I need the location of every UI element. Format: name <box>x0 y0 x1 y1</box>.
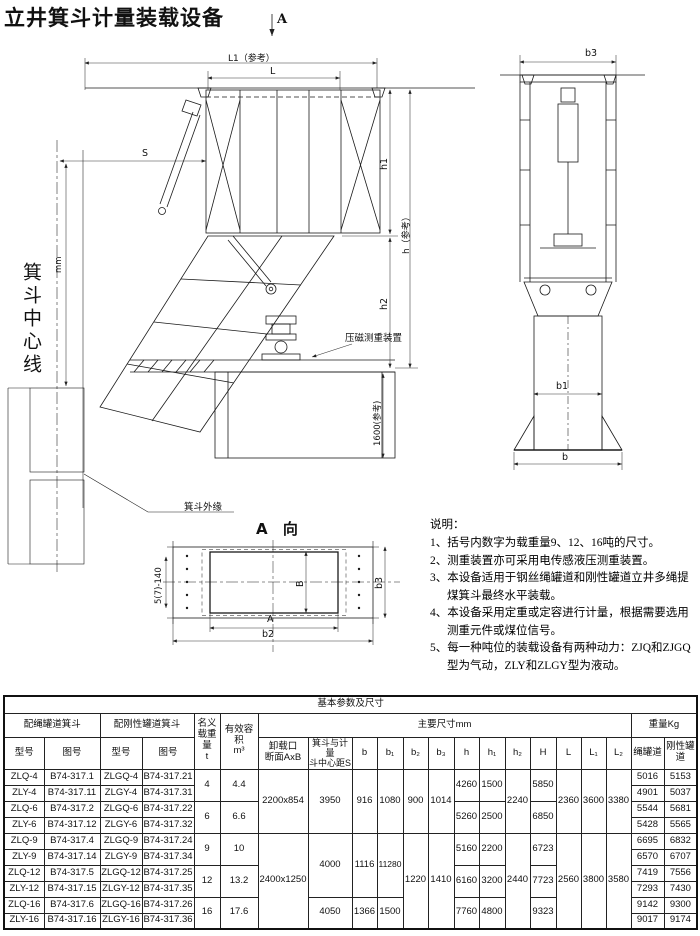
table-cell: B74-317.31 <box>142 785 194 801</box>
dim-label-mm: mm <box>54 256 64 273</box>
header-dim: b₃ <box>428 737 454 769</box>
table-cell: ZLY-16 <box>4 913 44 929</box>
table-cell: 6570 <box>631 849 664 865</box>
table-cell: B74-317.5 <box>44 865 100 881</box>
table-cell: 3950 <box>308 769 352 833</box>
dim-label-holes: 5(7)-140 <box>154 567 164 604</box>
technical-drawing: A L1（参考） L S mm h1 h2 h（参考） 1600(参考) 压磁测… <box>0 0 700 694</box>
table-row: ZLQ-4 B74-317.1 ZLGQ-4 B74-317.21 4 4.4 … <box>4 769 697 785</box>
table-cell: B74-317.1 <box>44 769 100 785</box>
table-cell: 4901 <box>631 785 664 801</box>
table-cell: 3580 <box>606 833 631 929</box>
table-cell: ZLGQ-9 <box>100 833 142 849</box>
table-cell: 4800 <box>479 897 505 929</box>
header-dim: L <box>556 737 581 769</box>
table-cell: B74-317.36 <box>142 913 194 929</box>
table-cell: 3800 <box>581 833 606 929</box>
table-cell: 5037 <box>664 785 697 801</box>
dim-label-l1: L1（参考） <box>228 51 275 64</box>
table-cell: 4050 <box>308 897 352 929</box>
table-cell: 7723 <box>530 865 556 897</box>
dim-label-A: A <box>267 614 274 625</box>
table-cell: ZLQ-16 <box>4 897 44 913</box>
table-cell: ZLGQ-12 <box>100 865 142 881</box>
table-cell: 9 <box>194 833 220 865</box>
table-cell: 2560 <box>556 833 581 929</box>
table-cell: 5681 <box>664 801 697 817</box>
table-cell: 7430 <box>664 881 697 897</box>
table-row: ZLQ-9 B74-317.4 ZLGQ-9 B74-317.24 9 10 2… <box>4 833 697 849</box>
table-cell: 5850 <box>530 769 556 801</box>
table-cell: 6 <box>194 801 220 833</box>
note-item: 1、括号内数字为载重量9、12、16吨的尺寸。 <box>430 535 696 552</box>
table-cell: 2440 <box>505 833 530 929</box>
table-cell: ZLGQ-16 <box>100 897 142 913</box>
table-cell: 11280 <box>377 833 403 897</box>
header-drawing-no: 图号 <box>44 737 100 769</box>
view-a-title: A 向 <box>256 518 303 539</box>
table-cell: 6723 <box>530 833 556 865</box>
table-cell: ZLY-12 <box>4 881 44 897</box>
table-cell: 1220 <box>403 833 428 929</box>
table-cell: 17.6 <box>220 897 258 929</box>
header-load: 名义 载重量 t <box>194 713 220 769</box>
table-cell: ZLGY-6 <box>100 817 142 833</box>
table-cell: 4 <box>194 769 220 801</box>
table-cell: B74-317.2 <box>44 801 100 817</box>
header-dim: L₂ <box>606 737 631 769</box>
table-cell: ZLQ-4 <box>4 769 44 785</box>
header-dim: H <box>530 737 556 769</box>
dim-label-h2: h2 <box>379 298 390 310</box>
dim-label-b1: b1 <box>556 381 568 392</box>
table-cell: 1500 <box>479 769 505 801</box>
table-cell: 3200 <box>479 865 505 897</box>
header-model: 型号 <box>4 737 44 769</box>
table-cell: 2200 <box>479 833 505 865</box>
table-cell: 7293 <box>631 881 664 897</box>
table-cell: 7419 <box>631 865 664 881</box>
table-cell: B74-317.11 <box>44 785 100 801</box>
header-dim: h <box>454 737 479 769</box>
table-cell: 900 <box>403 769 428 833</box>
section-arrow-label: A <box>277 12 287 27</box>
dim-label-b2: b2 <box>262 629 274 640</box>
table-cell: 5428 <box>631 817 664 833</box>
table-cell: B74-317.12 <box>44 817 100 833</box>
header-rope-group: 配绳罐道箕斗 <box>4 713 100 737</box>
table-cell: 12 <box>194 865 220 897</box>
table-cell: B74-317.21 <box>142 769 194 785</box>
table-cell: 6850 <box>530 801 556 833</box>
table-cell: B74-317.14 <box>44 849 100 865</box>
header-center-s: 箕斗与计量 斗中心距S <box>308 737 352 769</box>
note-item: 5、每一种吨位的装载设备有两种动力：ZJQ和ZJGQ型为气动，ZLY和ZLGY型… <box>430 640 696 675</box>
table-cell: B74-317.34 <box>142 849 194 865</box>
header-model: 型号 <box>100 737 142 769</box>
header-main-dims: 主要尺寸mm <box>258 713 631 737</box>
table-cell: 1080 <box>377 769 403 833</box>
table-cell: ZLQ-6 <box>4 801 44 817</box>
weigher-device-label: 压磁测重装置 <box>345 330 402 344</box>
table-row: 基本参数及尺寸 <box>4 696 697 713</box>
notes-block: 说明： 1、括号内数字为载重量9、12、16吨的尺寸。 2、测重装置亦可采用电传… <box>430 517 696 675</box>
table-cell: 4000 <box>308 833 352 897</box>
table-cell: 1500 <box>377 897 403 929</box>
table-cell: B74-317.35 <box>142 881 194 897</box>
table-cell: 3380 <box>606 769 631 833</box>
table-cell: 5016 <box>631 769 664 785</box>
dim-label-B: B <box>295 580 306 587</box>
table-cell: ZLY-9 <box>4 849 44 865</box>
table-cell: 5544 <box>631 801 664 817</box>
table-cell: 6.6 <box>220 801 258 833</box>
table-cell: 3600 <box>581 769 606 833</box>
table-cell: 9142 <box>631 897 664 913</box>
table-cell: ZLQ-12 <box>4 865 44 881</box>
table-cell: 2500 <box>479 801 505 833</box>
table-cell: 9017 <box>631 913 664 929</box>
table-cell: 1116 <box>352 833 377 897</box>
table-cell: 2400x1250 <box>258 833 308 929</box>
header-dim: h₂ <box>505 737 530 769</box>
header-drawing-no: 图号 <box>142 737 194 769</box>
table-cell: 1014 <box>428 769 454 833</box>
table-row: 配绳罐道箕斗 配刚性罐道箕斗 名义 载重量 t 有效容积 m³ 主要尺寸mm 重… <box>4 713 697 737</box>
table-cell: B74-317.24 <box>142 833 194 849</box>
table-cell: 6832 <box>664 833 697 849</box>
table-cell: 2360 <box>556 769 581 833</box>
dim-label-h-ref: h（参考） <box>399 212 412 254</box>
table-cell: B74-317.6 <box>44 897 100 913</box>
header-dim: h₁ <box>479 737 505 769</box>
table-cell: 10 <box>220 833 258 865</box>
table-cell: B74-317.26 <box>142 897 194 913</box>
table-cell: 1410 <box>428 833 454 929</box>
table-cell: 4260 <box>454 769 479 801</box>
table-cell: 6160 <box>454 865 479 897</box>
note-item: 3、本设备适用于钢丝绳罐道和刚性罐道立井多绳提煤箕斗最终水平装载。 <box>430 570 696 605</box>
spec-table: 基本参数及尺寸 配绳罐道箕斗 配刚性罐道箕斗 名义 载重量 t 有效容积 m³ … <box>3 695 698 930</box>
dim-label-s: S <box>142 148 148 159</box>
dim-label-l: L <box>270 66 275 77</box>
notes-heading: 说明： <box>430 517 696 534</box>
table-cell: 5153 <box>664 769 697 785</box>
table-cell: ZLGQ-6 <box>100 801 142 817</box>
header-dim: L₁ <box>581 737 606 769</box>
dim-label-h1: h1 <box>379 158 390 170</box>
catalog-page: 立井箕斗计量装载设备 <box>0 0 700 936</box>
table-cell: B74-317.32 <box>142 817 194 833</box>
header-weight: 重量Kg <box>631 713 697 737</box>
header-rigid-group: 配刚性罐道箕斗 <box>100 713 194 737</box>
table-cell: ZLY-6 <box>4 817 44 833</box>
table-cell: ZLGY-12 <box>100 881 142 897</box>
table-cell: ZLGY-4 <box>100 785 142 801</box>
note-item: 2、测重装置亦可采用电传感液压测重装置。 <box>430 553 696 570</box>
table-cell: ZLGQ-4 <box>100 769 142 785</box>
header-outlet: 卸载口 断面AxB <box>258 737 308 769</box>
table-cell: 9174 <box>664 913 697 929</box>
table-title-cell: 基本参数及尺寸 <box>4 696 697 713</box>
table-cell: B74-317.15 <box>44 881 100 897</box>
table-cell: 5160 <box>454 833 479 865</box>
table-cell: 7760 <box>454 897 479 929</box>
a-direction-view <box>163 540 400 652</box>
header-w-rigid: 刚性罐道 <box>664 737 697 769</box>
table-cell: 2200x854 <box>258 769 308 833</box>
table-cell: 13.2 <box>220 865 258 897</box>
table-cell: B74-317.25 <box>142 865 194 881</box>
dim-label-b: b <box>562 452 568 463</box>
table-cell: 6707 <box>664 849 697 865</box>
table-cell: 6695 <box>631 833 664 849</box>
skip-outer-edge-label: 箕斗外缘 <box>184 499 222 513</box>
table-cell: B74-317.22 <box>142 801 194 817</box>
table-cell: 916 <box>352 769 377 833</box>
table-cell: 9323 <box>530 897 556 929</box>
dim-label-b3: b3 <box>585 48 597 59</box>
header-volume: 有效容积 m³ <box>220 713 258 769</box>
table-cell: ZLGY-16 <box>100 913 142 929</box>
table-cell: 5260 <box>454 801 479 833</box>
table-cell: 16 <box>194 897 220 929</box>
table-row: 型号 图号 型号 图号 卸载口 断面AxB 箕斗与计量 斗中心距S b b₁ b… <box>4 737 697 769</box>
note-item: 4、本设备采用定重或定容进行计量，根据需要选用测重元件或煤位信号。 <box>430 605 696 640</box>
table-cell: 4.4 <box>220 769 258 801</box>
table-cell: B74-317.16 <box>44 913 100 929</box>
table-cell: ZLGY-9 <box>100 849 142 865</box>
table-cell: 5565 <box>664 817 697 833</box>
a-view-dimensions <box>166 547 385 645</box>
table-cell: ZLY-4 <box>4 785 44 801</box>
table-cell: 1366 <box>352 897 377 929</box>
table-cell: 9300 <box>664 897 697 913</box>
header-dim: b <box>352 737 377 769</box>
table-cell: B74-317.4 <box>44 833 100 849</box>
table-cell: 2240 <box>505 769 530 833</box>
dim-label-b3-view: b3 <box>374 577 385 589</box>
header-dim: b₁ <box>377 737 403 769</box>
skip-centerline-label: 箕斗中心线 <box>18 262 45 377</box>
header-w-rope: 绳罐道 <box>631 737 664 769</box>
dim-label-1600: 1600(参考) <box>371 401 383 446</box>
table-cell: ZLQ-9 <box>4 833 44 849</box>
header-dim: b₂ <box>403 737 428 769</box>
table-cell: 7556 <box>664 865 697 881</box>
